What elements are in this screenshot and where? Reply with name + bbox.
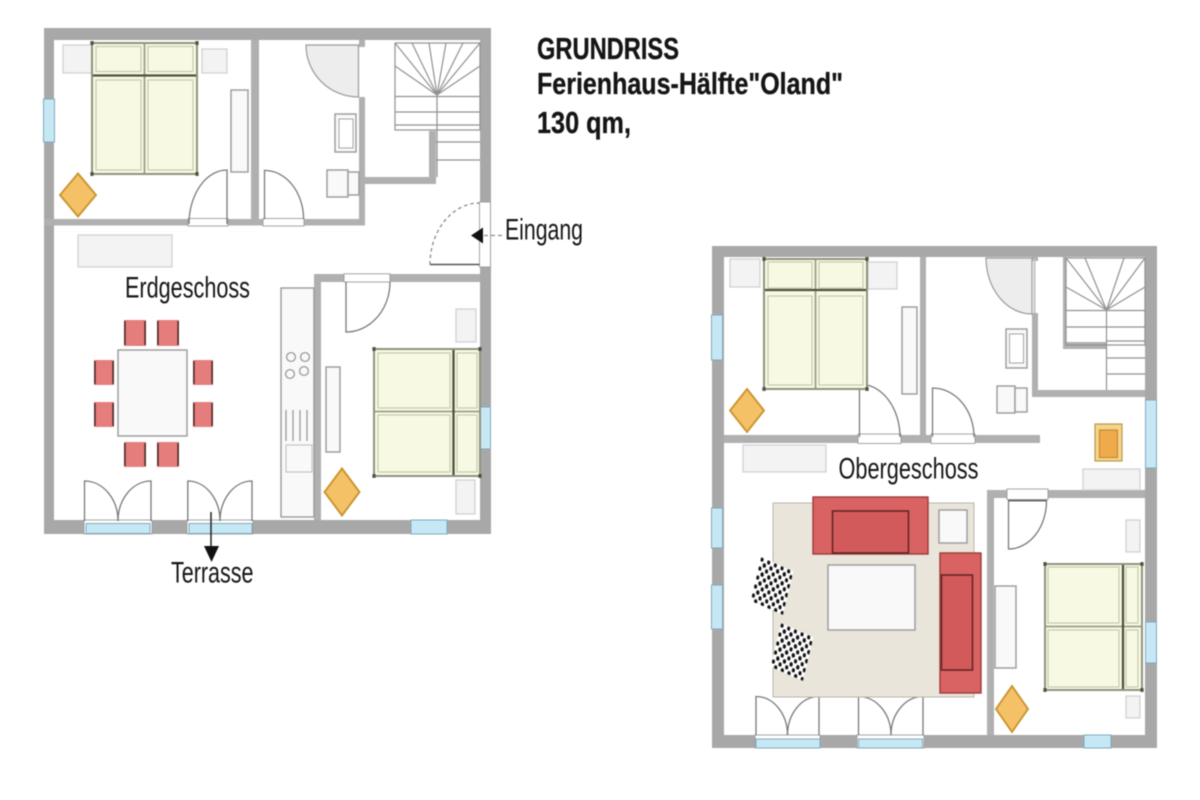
- svg-text:GRUNDRISS: GRUNDRISS: [537, 32, 679, 66]
- svg-text:Terrasse: Terrasse: [171, 557, 254, 590]
- svg-text:130 qm,: 130 qm,: [537, 106, 631, 140]
- svg-text:Ferienhaus-Hälfte"Oland": Ferienhaus-Hälfte"Oland": [537, 67, 843, 101]
- svg-text:Eingang: Eingang: [505, 214, 583, 247]
- svg-text:Obergeschoss: Obergeschoss: [839, 453, 979, 486]
- svg-text:Erdgeschoss: Erdgeschoss: [125, 272, 250, 305]
